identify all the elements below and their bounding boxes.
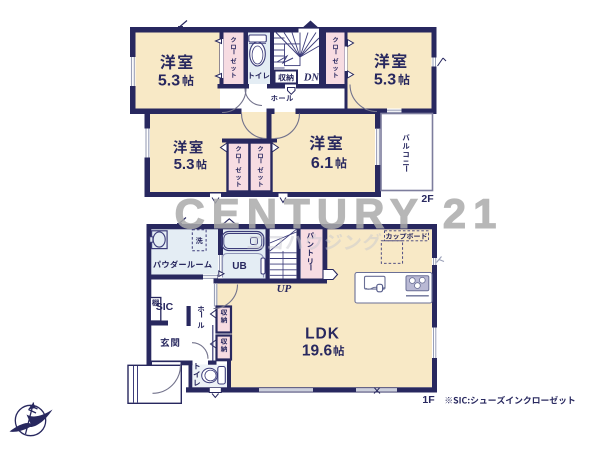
svg-text:UP: UP — [277, 283, 292, 295]
svg-text:6.1: 6.1 — [311, 155, 333, 172]
svg-text:CENTURY 21: CENTURY 21 — [174, 190, 503, 237]
svg-text:1F: 1F — [422, 394, 435, 406]
svg-text:5.3: 5.3 — [158, 73, 180, 90]
svg-text:5.3: 5.3 — [174, 156, 195, 173]
svg-text:5.3: 5.3 — [374, 72, 396, 89]
svg-text:LDK: LDK — [305, 326, 340, 343]
svg-text:SIC: SIC — [156, 301, 174, 313]
svg-text:19.6: 19.6 — [302, 343, 333, 360]
svg-text:UB: UB — [232, 261, 246, 272]
svg-text:DN: DN — [303, 73, 320, 84]
